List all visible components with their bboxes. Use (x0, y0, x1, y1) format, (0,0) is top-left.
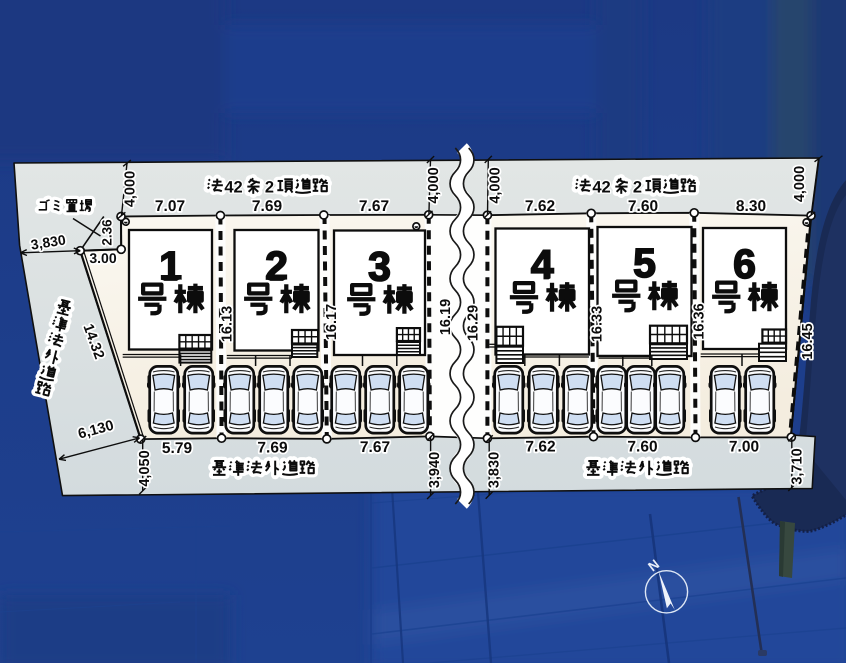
svg-text:7.67: 7.67 (359, 198, 389, 215)
svg-text:3,830: 3,830 (487, 452, 503, 488)
svg-text:16.45: 16.45 (800, 323, 816, 359)
svg-text:3,940: 3,940 (427, 452, 443, 488)
svg-text:7.69: 7.69 (252, 198, 283, 215)
svg-text:16.33: 16.33 (590, 306, 606, 342)
svg-text:16.29: 16.29 (466, 305, 482, 341)
svg-text:16.36: 16.36 (692, 303, 708, 339)
svg-text:7.00: 7.00 (729, 439, 759, 456)
svg-text:4,000: 4,000 (426, 167, 442, 203)
svg-text:4,000: 4,000 (792, 166, 808, 202)
svg-text:16.19: 16.19 (438, 299, 454, 335)
svg-text:7.07: 7.07 (155, 198, 185, 215)
svg-text:7.62: 7.62 (525, 198, 555, 215)
svg-text:16.13: 16.13 (220, 306, 236, 342)
svg-text:4,000: 4,000 (488, 167, 504, 203)
svg-text:3,710: 3,710 (790, 448, 806, 484)
svg-text:42: 42 (592, 179, 610, 197)
svg-text:7.67: 7.67 (360, 439, 390, 456)
svg-text:4,050: 4,050 (137, 450, 153, 486)
svg-text:7.60: 7.60 (627, 439, 657, 456)
svg-text:42: 42 (224, 179, 242, 197)
svg-text:7.62: 7.62 (525, 439, 555, 456)
svg-text:2: 2 (265, 179, 274, 197)
svg-text:7.69: 7.69 (257, 440, 288, 457)
svg-text:2.36: 2.36 (100, 219, 115, 246)
svg-text:7.60: 7.60 (628, 198, 658, 215)
svg-text:3.00: 3.00 (89, 250, 116, 266)
svg-text:5.79: 5.79 (162, 440, 193, 457)
svg-text:2: 2 (633, 179, 642, 197)
svg-text:8.30: 8.30 (736, 198, 766, 215)
svg-text:4,000: 4,000 (123, 171, 139, 207)
svg-text:16.17: 16.17 (324, 304, 340, 340)
